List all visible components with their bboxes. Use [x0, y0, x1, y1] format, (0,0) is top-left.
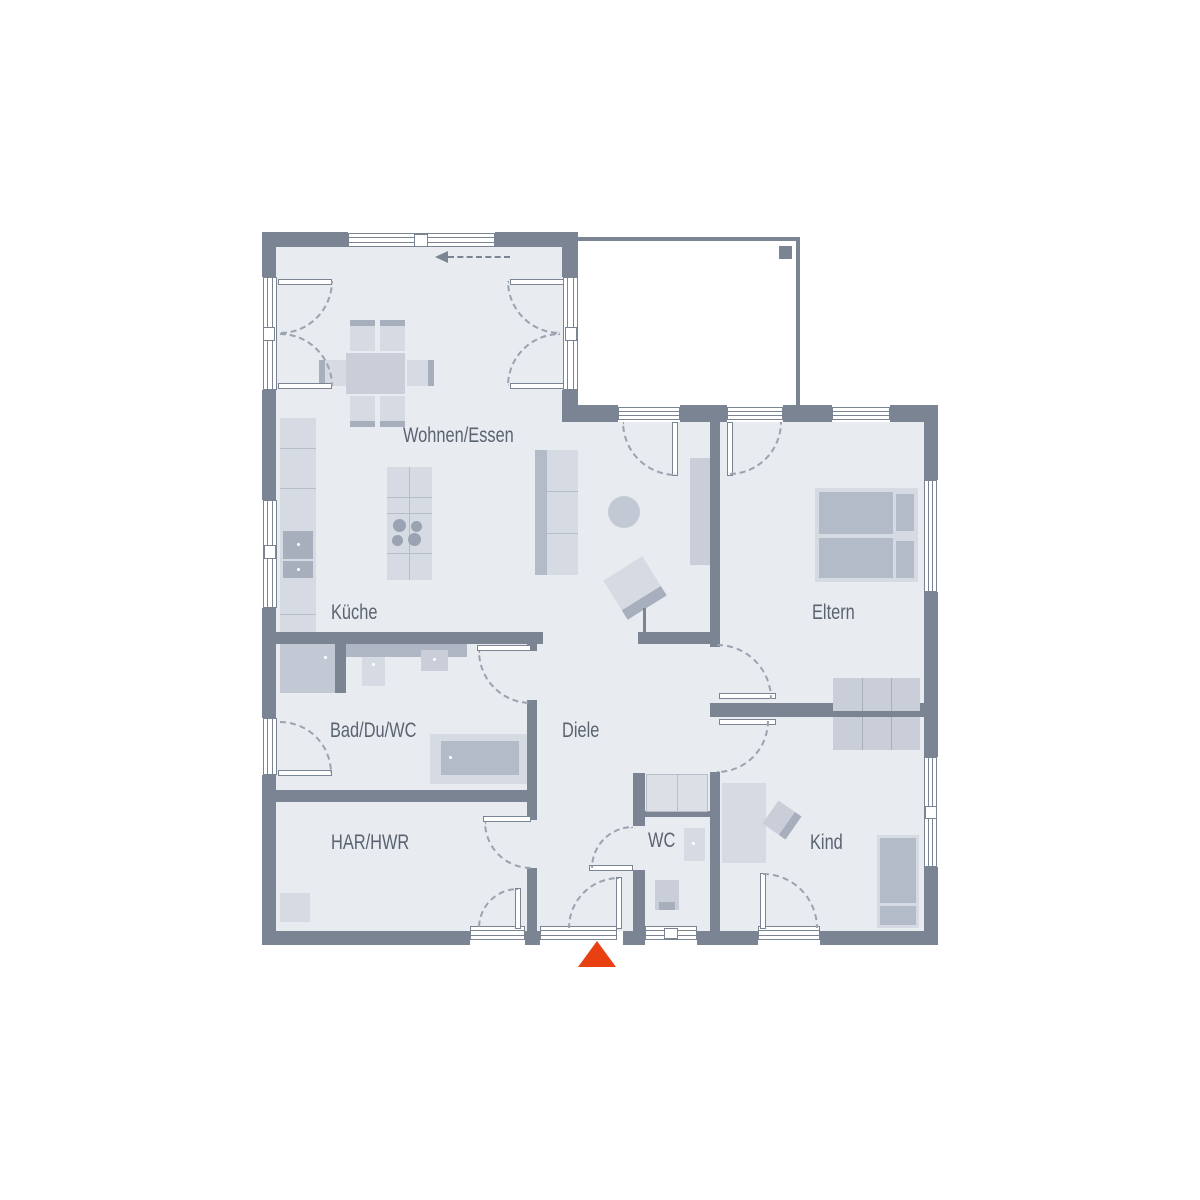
wall [680, 405, 727, 422]
shower-partition-wall [335, 644, 346, 693]
wall [643, 608, 646, 634]
wall [262, 931, 470, 945]
bath-toilet [421, 650, 448, 671]
wall [276, 790, 537, 802]
pillow [880, 906, 916, 925]
room-label-kueche: Küche [331, 601, 377, 625]
wall [562, 390, 578, 422]
dining-chair [380, 320, 405, 351]
wc-washbasin [684, 828, 705, 861]
sideboard [690, 458, 710, 565]
wall [783, 405, 832, 422]
wardrobe-child [833, 717, 920, 750]
dining-table [346, 353, 405, 394]
pillow [896, 494, 914, 531]
dining-chair [350, 396, 375, 427]
wc-toilet [655, 880, 679, 910]
window-handle [414, 234, 428, 247]
floor-plan: Wohnen/Essen Küche Eltern Bad/Du/WC Diel… [0, 0, 1200, 1200]
wall [638, 632, 712, 644]
wall [710, 422, 720, 647]
shower [280, 640, 337, 693]
parents-bed [815, 488, 918, 582]
arrow-dashed-tail [448, 256, 510, 258]
wardrobe-parents [833, 678, 920, 711]
bathtub-basin [441, 741, 519, 775]
dining-chair [380, 396, 405, 427]
child-bed [877, 835, 919, 928]
room-label-diele: Diele [562, 719, 599, 743]
cooktop-burner [393, 519, 406, 532]
dining-chair [407, 360, 434, 386]
wall [924, 592, 938, 757]
entrance-door-sill [540, 926, 617, 940]
entrance-triangle-icon [578, 941, 616, 967]
wall [527, 700, 537, 820]
door-handle [263, 327, 275, 341]
mattress [880, 838, 916, 903]
window-handle [264, 545, 276, 559]
door-handle [565, 327, 577, 341]
kitchen-counter [280, 418, 316, 632]
sofa [535, 450, 578, 575]
bathtub [430, 734, 530, 784]
window-handle [925, 806, 937, 819]
parents-window-east [924, 480, 937, 592]
wall [710, 772, 720, 931]
wall [262, 608, 276, 718]
room-label-har-hwr: HAR/HWR [331, 831, 409, 855]
coffee-table [608, 496, 640, 528]
window-handle [664, 928, 678, 939]
arrow-left-icon [435, 251, 448, 263]
terrace-hall-door [618, 407, 680, 420]
terrace-parents-door [727, 407, 783, 420]
terrace-corner-post [779, 246, 792, 259]
wall [623, 931, 645, 945]
cooktop-burner [411, 521, 422, 532]
wall [633, 870, 645, 931]
wall [820, 931, 938, 945]
room-label-eltern: Eltern [812, 601, 855, 625]
wall [525, 931, 540, 945]
kitchen-sink [283, 531, 313, 559]
room-label-wohnen-essen: Wohnen/Essen [403, 424, 514, 448]
kitchen-island [387, 467, 432, 580]
wall [890, 405, 938, 422]
child-terrace-door [758, 926, 820, 940]
wall [527, 868, 537, 931]
cooktop-burner [408, 533, 421, 546]
wall [262, 232, 276, 277]
bath-counter [346, 644, 467, 657]
hall-wardrobe [646, 774, 708, 812]
pillow [896, 541, 914, 578]
bath-washbasin [362, 657, 385, 686]
wall [262, 775, 276, 945]
dining-chair [350, 320, 375, 351]
bath-window-door [263, 718, 277, 775]
wall [562, 232, 578, 277]
mattress [819, 492, 893, 534]
wall [697, 931, 758, 945]
room-label-kind: Kind [810, 831, 843, 855]
wall [924, 867, 938, 945]
mattress [819, 538, 893, 578]
child-bed-side [722, 783, 766, 863]
terrace-area [578, 237, 800, 405]
wc-toilet-tank [659, 902, 675, 910]
room-label-wc: WC [648, 829, 675, 853]
kitchen-appliance [283, 561, 313, 578]
wall [262, 390, 276, 500]
parents-window-north [832, 407, 890, 420]
utility-appliance [280, 893, 310, 922]
room-label-bad-du-wc: Bad/Du/WC [330, 719, 416, 743]
wall [633, 773, 645, 826]
cooktop-burner [392, 535, 403, 546]
wall [262, 632, 543, 644]
